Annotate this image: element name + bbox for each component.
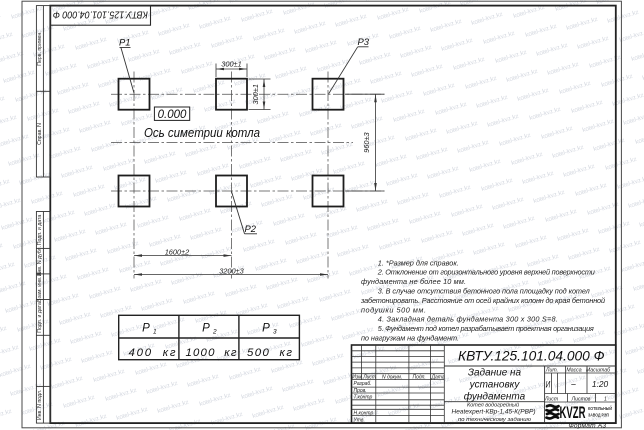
svg-text:подушки 500 мм.: подушки 500 мм. <box>361 305 426 314</box>
svg-text:kotel-kvz.kz: kotel-kvz.kz <box>575 182 608 198</box>
svg-text:kotel-kvz.kz: kotel-kvz.kz <box>1 216 34 232</box>
svg-text:kotel-kvz.kz: kotel-kvz.kz <box>407 357 440 373</box>
svg-text:kotel-kvz.kz: kotel-kvz.kz <box>303 186 336 202</box>
svg-text:kotel-kvz.kz: kotel-kvz.kz <box>0 325 8 341</box>
svg-text:kotel-kvz.kz: kotel-kvz.kz <box>144 150 177 166</box>
svg-text:kotel-kvz.kz: kotel-kvz.kz <box>229 366 262 382</box>
svg-text:kotel-kvz.kz: kotel-kvz.kz <box>29 337 62 353</box>
svg-text:kotel-kvz.kz: kotel-kvz.kz <box>3 69 36 85</box>
svg-text:kotel-kvz.kz: kotel-kvz.kz <box>282 378 315 394</box>
svg-text:фундамента не более 10 мм.: фундамента не более 10 мм. <box>361 277 466 286</box>
svg-text:kotel-kvz.kz: kotel-kvz.kz <box>280 148 313 164</box>
svg-text:kotel-kvz.kz: kotel-kvz.kz <box>310 122 343 138</box>
svg-text:kotel-kvz.kz: kotel-kvz.kz <box>495 49 528 65</box>
svg-text:kotel-kvz.kz: kotel-kvz.kz <box>253 27 286 43</box>
svg-text:kotel-kvz.kz: kotel-kvz.kz <box>593 137 626 153</box>
svg-text:kotel-kvz.kz: kotel-kvz.kz <box>312 352 345 368</box>
svg-text:5. Фундамент под котел разраба: 5. Фундамент под котел разрабатывает про… <box>378 324 594 333</box>
svg-text:kotel-kvz.kz: kotel-kvz.kz <box>633 277 644 293</box>
svg-text:kotel-kvz.kz: kotel-kvz.kz <box>503 215 536 231</box>
svg-text:kotel-kvz.kz: kotel-kvz.kz <box>566 16 599 32</box>
svg-text:kotel-kvz.kz: kotel-kvz.kz <box>451 203 484 219</box>
svg-text:kotel-kvz.kz: kotel-kvz.kz <box>294 20 327 36</box>
svg-text:Инв. N подл.: Инв. N подл. <box>37 390 43 421</box>
svg-text:kotel-kvz.kz: kotel-kvz.kz <box>289 314 322 330</box>
svg-text:kotel-kvz.kz: kotel-kvz.kz <box>317 58 350 74</box>
svg-text:kotel-kvz.kz: kotel-kvz.kz <box>476 94 509 110</box>
svg-text:Т.контр: Т.контр <box>354 395 373 401</box>
svg-text:kotel-kvz.kz: kotel-kvz.kz <box>568 246 601 262</box>
svg-text:kotel-kvz.kz: kotel-kvz.kz <box>603 303 636 319</box>
svg-text:kotel-kvz.kz: kotel-kvz.kz <box>353 345 386 361</box>
svg-text:kotel-kvz.kz: kotel-kvz.kz <box>619 405 644 421</box>
svg-text:kotel-kvz.kz: kotel-kvz.kz <box>241 8 274 24</box>
svg-text:kotel-kvz.kz: kotel-kvz.kz <box>54 228 87 244</box>
svg-text:kotel-kvz.kz: kotel-kvz.kz <box>631 47 644 63</box>
svg-text:kotel-kvz.kz: kotel-kvz.kz <box>293 397 326 413</box>
svg-text:kotel-kvz.kz: kotel-kvz.kz <box>68 100 101 116</box>
svg-text:kotel-kvz.kz: kotel-kvz.kz <box>209 181 242 197</box>
svg-text:kotel-kvz.kz: kotel-kvz.kz <box>51 375 84 391</box>
svg-text:Дата: Дата <box>431 375 445 381</box>
svg-text:kotel-kvz.kz: kotel-kvz.kz <box>619 28 644 44</box>
svg-text:kotel-kvz.kz: kotel-kvz.kz <box>397 191 430 207</box>
svg-text:kotel-kvz.kz: kotel-kvz.kz <box>367 217 400 233</box>
svg-text:КВТУ.125.101.04.000 Ф: КВТУ.125.101.04.000 Ф <box>458 349 605 364</box>
svg-text:Подп. и дата: Подп. и дата <box>37 302 43 333</box>
svg-text:забетонировать. Расстояние от: забетонировать. Расстояние от осей крайн… <box>360 296 605 305</box>
svg-text:Перв. примен.: Перв. примен. <box>37 31 43 66</box>
svg-text:kotel-kvz.kz: kotel-kvz.kz <box>84 202 117 218</box>
svg-text:kotel-kvz.kz: kotel-kvz.kz <box>359 51 392 67</box>
svg-text:kotel-kvz.kz: kotel-kvz.kz <box>0 95 6 111</box>
svg-text:kotel-kvz.kz: kotel-kvz.kz <box>211 411 244 427</box>
svg-text:kotel-kvz.kz: kotel-kvz.kz <box>326 224 359 240</box>
svg-text:kotel-kvz.kz: kotel-kvz.kz <box>609 239 642 255</box>
svg-text:kotel-kvz.kz: kotel-kvz.kz <box>19 171 52 187</box>
svg-text:960±3: 960±3 <box>362 131 371 152</box>
svg-text:N докум.: N докум. <box>382 375 402 381</box>
svg-text:kotel-kvz.kz: kotel-kvz.kz <box>190 226 223 242</box>
svg-text:KVZR: KVZR <box>560 404 586 422</box>
svg-text:kotel-kvz.kz: kotel-kvz.kz <box>0 344 20 360</box>
svg-text:1: 1 <box>604 396 607 402</box>
svg-text:kotel-kvz.kz: kotel-kvz.kz <box>499 132 532 148</box>
svg-text:kotel-kvz.kz: kotel-kvz.kz <box>255 257 288 273</box>
svg-text:Пров.: Пров. <box>354 388 367 394</box>
svg-text:kotel-kvz.kz: kotel-kvz.kz <box>386 172 419 188</box>
svg-text:kotel-kvz.kz: kotel-kvz.kz <box>506 68 539 84</box>
svg-text:kotel-kvz.kz: kotel-kvz.kz <box>179 207 212 223</box>
svg-text:–: – <box>570 380 576 389</box>
svg-text:kotel-kvz.kz: kotel-kvz.kz <box>257 110 290 126</box>
svg-text:по техническому заданию: по техническому заданию <box>458 417 532 423</box>
svg-text:kotel-kvz.kz: kotel-kvz.kz <box>128 48 161 64</box>
svg-text:Формат А3: Формат А3 <box>569 423 607 430</box>
svg-text:И: И <box>546 379 551 389</box>
svg-text:kotel-kvz.kz: kotel-kvz.kz <box>158 22 191 38</box>
svg-text:kotel-kvz.kz: kotel-kvz.kz <box>119 259 152 275</box>
svg-text:kotel-kvz.kz: kotel-kvz.kz <box>571 99 604 115</box>
svg-text:500 кг: 500 кг <box>247 347 292 359</box>
svg-text:kotel-kvz.kz: kotel-kvz.kz <box>250 174 283 190</box>
svg-text:kotel-kvz.kz: kotel-kvz.kz <box>409 210 442 226</box>
svg-text:kotel-kvz.kz: kotel-kvz.kz <box>169 41 202 57</box>
svg-text:kotel-kvz.kz: kotel-kvz.kz <box>49 145 82 161</box>
svg-text:kotel-kvz.kz: kotel-kvz.kz <box>199 392 232 408</box>
svg-text:kotel-kvz.kz: kotel-kvz.kz <box>125 195 158 211</box>
svg-text:Взам. инв. N: Взам. инв. N <box>37 271 43 302</box>
svg-text:kotel-kvz.kz: kotel-kvz.kz <box>241 385 274 401</box>
svg-text:kotel-kvz.kz: kotel-kvz.kz <box>462 222 495 238</box>
svg-text:1. *Размер для справок.: 1. *Размер для справок. <box>378 258 459 267</box>
svg-text:kotel-kvz.kz: kotel-kvz.kz <box>511 151 544 167</box>
svg-text:kotel-kvz.kz: kotel-kvz.kz <box>492 196 525 212</box>
svg-text:kotel-kvz.kz: kotel-kvz.kz <box>109 93 142 109</box>
svg-text:kotel-kvz.kz: kotel-kvz.kz <box>87 55 120 71</box>
svg-text:kotel-kvz.kz: kotel-kvz.kz <box>0 133 30 149</box>
svg-text:kotel-kvz.kz: kotel-kvz.kz <box>621 258 644 274</box>
svg-text:kotel-kvz.kz: kotel-kvz.kz <box>135 361 168 377</box>
svg-text:kotel-kvz.kz: kotel-kvz.kz <box>70 330 103 346</box>
svg-text:kotel-kvz.kz: kotel-kvz.kz <box>107 240 140 256</box>
svg-text:kotel-kvz.kz: kotel-kvz.kz <box>547 61 580 77</box>
svg-text:kotel-kvz.kz: kotel-kvz.kz <box>370 70 403 86</box>
svg-text:kotel-kvz.kz: kotel-kvz.kz <box>637 360 644 376</box>
svg-text:kotel-kvz.kz: kotel-kvz.kz <box>91 138 124 154</box>
svg-text:по нагрузкам на фундамент.: по нагрузкам на фундамент. <box>361 334 459 343</box>
svg-text:kotel-kvz.kz: kotel-kvz.kz <box>411 63 444 79</box>
svg-text:kotel-kvz.kz: kotel-kvz.kz <box>0 408 13 424</box>
svg-text:Котел водогрейный: Котел водогрейный <box>467 401 519 408</box>
svg-text:kotel-kvz.kz: kotel-kvz.kz <box>93 368 126 384</box>
svg-text:kotel-kvz.kz: kotel-kvz.kz <box>0 363 32 379</box>
svg-text:kotel-kvz.kz: kotel-kvz.kz <box>264 46 297 62</box>
svg-text:kotel-kvz.kz: kotel-kvz.kz <box>275 65 308 81</box>
svg-text:kotel-kvz.kz: kotel-kvz.kz <box>333 160 366 176</box>
svg-text:kotel-kvz.kz: kotel-kvz.kz <box>0 50 25 66</box>
svg-text:Масса: Масса <box>566 367 581 373</box>
svg-text:300±1: 300±1 <box>221 60 242 69</box>
svg-text:1000 кг: 1000 кг <box>186 347 237 359</box>
svg-text:kotel-kvz.kz: kotel-kvz.kz <box>116 406 149 422</box>
svg-text:Утв.: Утв. <box>354 417 365 423</box>
svg-text:3200±3: 3200±3 <box>219 267 244 276</box>
svg-text:kotel-kvz.kz: kotel-kvz.kz <box>379 236 412 252</box>
svg-text:kotel-kvz.kz: kotel-kvz.kz <box>340 96 373 112</box>
svg-text:установку: установку <box>469 380 521 391</box>
svg-text:kotel-kvz.kz: kotel-kvz.kz <box>17 318 50 334</box>
svg-text:kotel-kvz.kz: kotel-kvz.kz <box>181 60 214 76</box>
svg-text:kotel-kvz.kz: kotel-kvz.kz <box>63 394 96 410</box>
svg-text:kotel-kvz.kz: kotel-kvz.kz <box>130 278 163 294</box>
svg-text:kotel-kvz.kz: kotel-kvz.kz <box>628 194 644 210</box>
svg-text:kotel-kvz.kz: kotel-kvz.kz <box>185 143 218 159</box>
svg-text:Справ. N: Справ. N <box>37 123 43 145</box>
svg-text:kotel-kvz.kz: kotel-kvz.kz <box>607 9 640 25</box>
svg-text:kotel-kvz.kz: kotel-kvz.kz <box>89 285 122 301</box>
svg-text:3: 3 <box>273 329 277 336</box>
svg-text:P: P <box>202 323 210 335</box>
svg-text:kotel-kvz.kz: kotel-kvz.kz <box>79 119 112 135</box>
svg-text:kotel-kvz.kz: kotel-kvz.kz <box>141 297 174 313</box>
svg-text:kotel-kvz.kz: kotel-kvz.kz <box>639 213 644 229</box>
svg-text:Ось симетрии котла: Ось симетрии котла <box>144 125 260 140</box>
svg-text:kotel-kvz.kz: kotel-kvz.kz <box>139 67 172 83</box>
svg-text:kotel-kvz.kz: kotel-kvz.kz <box>582 118 615 134</box>
svg-text:kotel-kvz.kz: kotel-kvz.kz <box>377 383 410 399</box>
svg-text:kotel-kvz.kz: kotel-kvz.kz <box>239 155 272 171</box>
svg-text:kotel-kvz.kz: kotel-kvz.kz <box>0 178 11 194</box>
svg-text:Подп. и дата: Подп. и дата <box>37 215 43 246</box>
svg-text:P: P <box>262 323 270 335</box>
svg-text:kotel-kvz.kz: kotel-kvz.kz <box>319 288 352 304</box>
svg-text:kotel-kvz.kz: kotel-kvz.kz <box>577 35 610 51</box>
svg-text:kotel-kvz.kz: kotel-kvz.kz <box>381 89 414 105</box>
svg-text:kotel-kvz.kz: kotel-kvz.kz <box>337 243 370 259</box>
svg-text:kotel-kvz.kz: kotel-kvz.kz <box>635 130 644 146</box>
svg-text:kotel-kvz.kz: kotel-kvz.kz <box>183 290 216 306</box>
svg-text:kotel-kvz.kz: kotel-kvz.kz <box>517 87 550 103</box>
svg-text:kotel-kvz.kz: kotel-kvz.kz <box>399 421 432 430</box>
svg-text:kotel-kvz.kz: kotel-kvz.kz <box>31 190 64 206</box>
svg-text:kotel-kvz.kz: kotel-kvz.kz <box>441 37 474 53</box>
svg-text:kotel-kvz.kz: kotel-kvz.kz <box>0 12 2 28</box>
svg-text:kotel-kvz.kz: kotel-kvz.kz <box>423 82 456 98</box>
svg-text:kotel-kvz.kz: kotel-kvz.kz <box>321 141 354 157</box>
svg-text:kotel-kvz.kz: kotel-kvz.kz <box>457 139 490 155</box>
svg-text:kotel-kvz.kz: kotel-kvz.kz <box>393 108 426 124</box>
svg-text:4. Закладная деталь фундамента: 4. Закладная деталь фундамента 300 x 300… <box>378 315 558 324</box>
svg-text:kotel-kvz.kz: kotel-kvz.kz <box>430 18 463 34</box>
svg-text:kotel-kvz.kz: kotel-kvz.kz <box>98 74 131 90</box>
svg-text:kotel-kvz.kz: kotel-kvz.kz <box>33 420 66 430</box>
svg-text:kotel-kvz.kz: kotel-kvz.kz <box>625 341 644 357</box>
svg-text:kotel-kvz.kz: kotel-kvz.kz <box>287 84 320 100</box>
svg-text:Лист: Лист <box>362 375 376 381</box>
svg-text:kotel-kvz.kz: kotel-kvz.kz <box>103 157 136 173</box>
svg-text:kotel-kvz.kz: kotel-kvz.kz <box>271 359 304 375</box>
svg-text:2. Отклонение от горизонтально: 2. Отклонение от горизонтального уровня … <box>377 268 595 277</box>
svg-text:kotel-kvz.kz: kotel-kvz.kz <box>427 165 460 181</box>
svg-text:kotel-kvz.kz: kotel-kvz.kz <box>5 299 38 315</box>
svg-text:kotel-kvz.kz: kotel-kvz.kz <box>469 158 502 174</box>
svg-text:kotel-kvz.kz: kotel-kvz.kz <box>563 163 596 179</box>
svg-text:kotel-kvz.kz: kotel-kvz.kz <box>157 399 190 415</box>
svg-text:kotel-kvz.kz: kotel-kvz.kz <box>206 328 239 344</box>
svg-text:kotel-kvz.kz: kotel-kvz.kz <box>331 307 364 323</box>
svg-text:Изм.: Изм. <box>352 375 363 381</box>
svg-text:kotel-kvz.kz: kotel-kvz.kz <box>77 266 110 282</box>
svg-text:kotel-kvz.kz: kotel-kvz.kz <box>483 30 516 46</box>
svg-text:kotel-kvz.kz: kotel-kvz.kz <box>81 349 114 365</box>
svg-text:kotel-kvz.kz: kotel-kvz.kz <box>0 242 4 258</box>
svg-text:ЗАВОД РЭП: ЗАВОД РЭП <box>588 412 609 418</box>
svg-text:kotel-kvz.kz: kotel-kvz.kz <box>0 31 14 47</box>
svg-text:kotel-kvz.kz: kotel-kvz.kz <box>75 413 108 429</box>
svg-text:kotel-kvz.kz: kotel-kvz.kz <box>261 193 294 209</box>
svg-text:kotel-kvz.kz: kotel-kvz.kz <box>335 13 368 29</box>
svg-text:kotel-kvz.kz: kotel-kvz.kz <box>0 261 16 277</box>
svg-text:kotel-kvz.kz: kotel-kvz.kz <box>296 250 329 266</box>
svg-text:kotel-kvz.kz: kotel-kvz.kz <box>307 269 340 285</box>
svg-text:kotel-kvz.kz: kotel-kvz.kz <box>345 179 378 195</box>
svg-text:kotel-kvz.kz: kotel-kvz.kz <box>487 113 520 129</box>
svg-text:kotel-kvz.kz: kotel-kvz.kz <box>0 114 18 130</box>
svg-text:kotel-kvz.kz: kotel-kvz.kz <box>283 1 316 17</box>
svg-text:КОТЕЛЬНЫЙ: КОТЕЛЬНЫЙ <box>588 404 612 412</box>
svg-text:kotel-kvz.kz: kotel-kvz.kz <box>522 170 555 186</box>
svg-text:kotel-kvz.kz: kotel-kvz.kz <box>195 309 228 325</box>
svg-text:kotel-kvz.kz: kotel-kvz.kz <box>545 208 578 224</box>
svg-text:kotel-kvz.kz: kotel-kvz.kz <box>65 247 98 263</box>
svg-text:фундамента: фундамента <box>464 391 526 403</box>
svg-text:Разраб.: Разраб. <box>354 381 372 387</box>
svg-text:Масштаб: Масштаб <box>586 367 611 373</box>
svg-text:КВТУ.125.101.04.000 Ф: КВТУ.125.101.04.000 Ф <box>53 9 148 20</box>
svg-text:kotel-kvz.kz: kotel-kvz.kz <box>554 374 587 390</box>
svg-text:kotel-kvz.kz: kotel-kvz.kz <box>525 23 558 39</box>
svg-text:P1: P1 <box>119 37 130 48</box>
svg-text:kotel-kvz.kz: kotel-kvz.kz <box>59 311 92 327</box>
svg-text:Листов: Листов <box>571 396 591 402</box>
svg-text:P: P <box>142 323 150 335</box>
svg-text:kotel-kvz.kz: kotel-kvz.kz <box>0 197 22 213</box>
svg-text:kotel-kvz.kz: kotel-kvz.kz <box>419 0 452 15</box>
svg-text:Heatexpert-КВр-1,45-К(РВР): Heatexpert-КВр-1,45-К(РВР) <box>452 409 536 415</box>
svg-text:kotel-kvz.kz: kotel-kvz.kz <box>601 73 634 89</box>
svg-text:kotel-kvz.kz: kotel-kvz.kz <box>61 164 94 180</box>
svg-text:kotel-kvz.kz: kotel-kvz.kz <box>171 271 204 287</box>
svg-text:kotel-kvz.kz: kotel-kvz.kz <box>541 125 574 141</box>
svg-text:kotel-kvz.kz: kotel-kvz.kz <box>614 322 644 338</box>
svg-text:Задание на: Задание на <box>468 367 522 378</box>
svg-text:kotel-kvz.kz: kotel-kvz.kz <box>243 238 276 254</box>
svg-text:kotel-kvz.kz: kotel-kvz.kz <box>351 115 384 131</box>
svg-text:kotel-kvz.kz: kotel-kvz.kz <box>623 111 644 127</box>
svg-text:kotel-kvz.kz: kotel-kvz.kz <box>8 152 41 168</box>
svg-text:kotel-kvz.kz: kotel-kvz.kz <box>75 36 108 52</box>
svg-text:Лист: Лист <box>544 396 559 402</box>
svg-text:kotel-kvz.kz: kotel-kvz.kz <box>193 79 226 95</box>
svg-text:kotel-kvz.kz: kotel-kvz.kz <box>73 183 106 199</box>
svg-text:300±1: 300±1 <box>251 84 260 105</box>
svg-text:kotel-kvz.kz: kotel-kvz.kz <box>187 373 220 389</box>
svg-text:kotel-kvz.kz: kotel-kvz.kz <box>587 201 620 217</box>
svg-text:kotel-kvz.kz: kotel-kvz.kz <box>225 283 258 299</box>
svg-text:kotel-kvz.kz: kotel-kvz.kz <box>0 280 27 296</box>
svg-text:kotel-kvz.kz: kotel-kvz.kz <box>167 188 200 204</box>
svg-text:kotel-kvz.kz: kotel-kvz.kz <box>435 101 468 117</box>
svg-text:kotel-kvz.kz: kotel-kvz.kz <box>515 234 548 250</box>
svg-text:kotel-kvz.kz: kotel-kvz.kz <box>533 189 566 205</box>
svg-text:1600±2: 1600±2 <box>165 247 190 256</box>
svg-text:kotel-kvz.kz: kotel-kvz.kz <box>155 169 188 185</box>
svg-text:kotel-kvz.kz: kotel-kvz.kz <box>100 304 133 320</box>
svg-text:kotel-kvz.kz: kotel-kvz.kz <box>11 5 44 21</box>
svg-text:P3: P3 <box>358 36 370 47</box>
svg-text:kotel-kvz.kz: kotel-kvz.kz <box>146 380 179 396</box>
svg-text:kotel-kvz.kz: kotel-kvz.kz <box>199 15 232 31</box>
svg-text:kotel-kvz.kz: kotel-kvz.kz <box>630 424 644 430</box>
svg-text:1: 1 <box>153 329 157 336</box>
svg-text:kotel-kvz.kz: kotel-kvz.kz <box>375 153 408 169</box>
svg-text:kotel-kvz.kz: kotel-kvz.kz <box>481 177 514 193</box>
svg-text:kotel-kvz.kz: kotel-kvz.kz <box>211 34 244 50</box>
svg-text:kotel-kvz.kz: kotel-kvz.kz <box>465 75 498 91</box>
svg-text:kotel-kvz.kz: kotel-kvz.kz <box>617 175 644 191</box>
svg-text:kotel-kvz.kz: kotel-kvz.kz <box>416 146 449 162</box>
svg-text:kotel-kvz.kz: kotel-kvz.kz <box>105 387 138 403</box>
svg-text:kotel-kvz.kz: kotel-kvz.kz <box>252 404 285 420</box>
svg-text:kotel-kvz.kz: kotel-kvz.kz <box>421 229 454 245</box>
svg-text:kotel-kvz.kz: kotel-kvz.kz <box>439 184 472 200</box>
svg-text:kotel-kvz.kz: kotel-kvz.kz <box>536 42 569 58</box>
svg-text:2: 2 <box>212 329 217 336</box>
svg-text:kotel-kvz.kz: kotel-kvz.kz <box>598 220 631 236</box>
svg-text:kotel-kvz.kz: kotel-kvz.kz <box>377 6 410 22</box>
svg-text:kotel-kvz.kz: kotel-kvz.kz <box>137 214 170 230</box>
svg-text:kotel-kvz.kz: kotel-kvz.kz <box>57 81 90 97</box>
svg-text:kotel-kvz.kz: kotel-kvz.kz <box>95 221 128 237</box>
svg-text:kotel-kvz.kz: kotel-kvz.kz <box>559 80 592 96</box>
svg-text:kotel-kvz.kz: kotel-kvz.kz <box>446 120 479 136</box>
svg-text:Лит.: Лит. <box>545 367 558 373</box>
svg-text:kotel-kvz.kz: kotel-kvz.kz <box>285 231 318 247</box>
svg-text:3. В случае отсутствия бетонно: 3. В случае отсутствия бетонного пола пл… <box>378 287 590 296</box>
svg-text:kotel-kvz.kz: kotel-kvz.kz <box>323 371 356 387</box>
svg-text:kotel-kvz.kz: kotel-kvz.kz <box>15 88 48 104</box>
svg-text:kotel-kvz.kz: kotel-kvz.kz <box>111 323 144 339</box>
svg-text:kotel-kvz.kz: kotel-kvz.kz <box>356 198 389 214</box>
svg-text:kotel-kvz.kz: kotel-kvz.kz <box>405 127 438 143</box>
svg-text:kotel-kvz.kz: kotel-kvz.kz <box>277 295 310 311</box>
svg-text:kotel-kvz.kz: kotel-kvz.kz <box>471 11 504 27</box>
svg-text:P2: P2 <box>245 223 257 234</box>
svg-text:kotel-kvz.kz: kotel-kvz.kz <box>527 253 560 269</box>
svg-text:kotel-kvz.kz: kotel-kvz.kz <box>389 25 422 41</box>
svg-text:kotel-kvz.kz: kotel-kvz.kz <box>453 56 486 72</box>
svg-text:Подп.: Подп. <box>413 375 426 381</box>
svg-text:Н.контр: Н.контр <box>354 411 374 417</box>
svg-text:kotel-kvz.kz: kotel-kvz.kz <box>299 103 332 119</box>
svg-text:kotel-kvz.kz: kotel-kvz.kz <box>201 245 234 261</box>
svg-text:kotel-kvz.kz: kotel-kvz.kz <box>473 241 506 257</box>
svg-text:kotel-kvz.kz: kotel-kvz.kz <box>40 356 73 372</box>
svg-text:kotel-kvz.kz: kotel-kvz.kz <box>552 144 585 160</box>
svg-text:kotel-kvz.kz: kotel-kvz.kz <box>557 227 590 243</box>
svg-text:kotel-kvz.kz: kotel-kvz.kz <box>529 106 562 122</box>
svg-text:kotel-kvz.kz: kotel-kvz.kz <box>153 316 186 332</box>
svg-text:0.000: 0.000 <box>158 109 187 121</box>
svg-text:kotel-kvz.kz: kotel-kvz.kz <box>301 333 334 349</box>
svg-text:kotel-kvz.kz: kotel-kvz.kz <box>305 39 338 55</box>
svg-text:kotel-kvz.kz: kotel-kvz.kz <box>47 292 80 308</box>
svg-text:kotel-kvz.kz: kotel-kvz.kz <box>245 91 278 107</box>
svg-text:1:20: 1:20 <box>592 379 609 389</box>
svg-text:kotel-kvz.kz: kotel-kvz.kz <box>349 262 382 278</box>
svg-text:kotel-kvz.kz: kotel-kvz.kz <box>266 276 299 292</box>
svg-text:kotel-kvz.kz: kotel-kvz.kz <box>400 44 433 60</box>
svg-text:kotel-kvz.kz: kotel-kvz.kz <box>273 212 306 228</box>
